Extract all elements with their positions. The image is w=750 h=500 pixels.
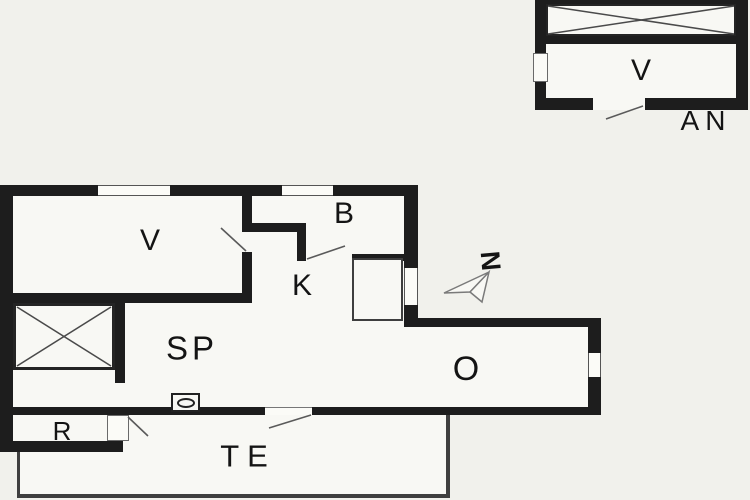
label-room-k: K (292, 271, 312, 301)
v-door-swing-icon (221, 228, 246, 251)
label-room-v-annex: V (631, 56, 651, 86)
label-room-sp: SP (166, 332, 218, 365)
label-room-b: B (334, 199, 354, 229)
label-room-r: R (53, 418, 72, 444)
b-door-swing-icon (307, 246, 345, 259)
floor-plan-canvas: V B K SP O R TE V AN N (0, 0, 750, 500)
r-door-swing-icon (128, 417, 148, 436)
label-room-v-main: V (140, 226, 160, 256)
label-terrace: TE (220, 441, 276, 472)
label-compass-north: N (476, 250, 505, 272)
terrace-door-swing-icon (269, 415, 311, 428)
label-room-o: O (453, 352, 479, 386)
label-annex: AN (681, 107, 732, 135)
annex-door-swing-icon (606, 106, 643, 119)
